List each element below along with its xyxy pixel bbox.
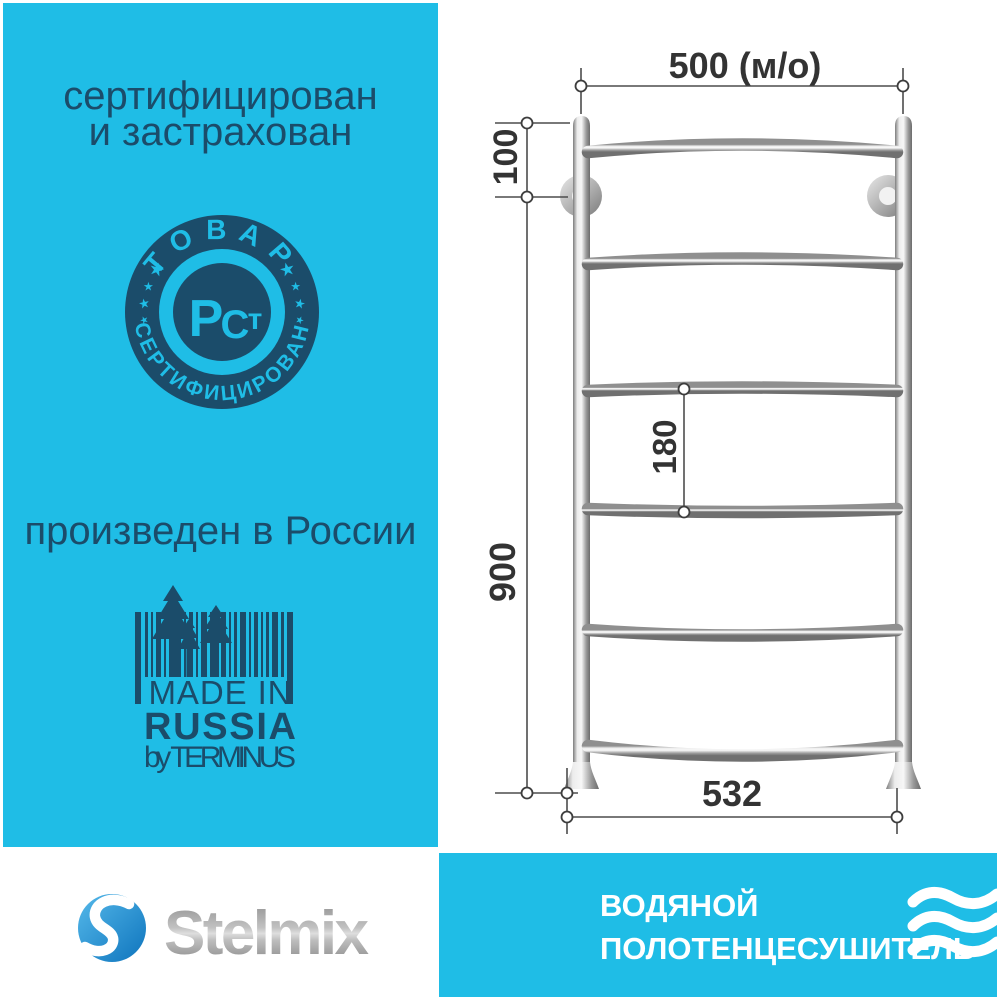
towel-rail-technical-drawing: 500 (м/о) 100 180 900 532 [0, 0, 1000, 1000]
dim-width-bottom: 532 [702, 773, 762, 814]
brand-name: Stelmix [164, 899, 370, 968]
dim-height: 900 [482, 542, 523, 602]
stelmix-logo: Stelmix [72, 888, 382, 968]
dimension-lines [495, 68, 903, 834]
dim-rung-spacing: 180 [646, 419, 683, 474]
dimension-annotations: 500 (м/о) 100 180 900 532 [482, 45, 909, 834]
product-type-text: ВОДЯНОЙ ПОЛОТЕНЦЕСУШИТЕЛЬ [600, 884, 975, 970]
rail-rungs [588, 145, 897, 756]
dimension-labels: 500 (м/о) 100 180 900 532 [482, 45, 821, 814]
product-line2: ПОЛОТЕНЦЕСУШИТЕЛЬ [600, 927, 975, 970]
product-type-panel: ВОДЯНОЙ ПОЛОТЕНЦЕСУШИТЕЛЬ [439, 853, 997, 997]
rail-posts [564, 116, 921, 789]
page: сертифицирован и застрахован Р С т ТОВАР… [0, 0, 1000, 1000]
towel-rail [560, 116, 921, 789]
product-line1: ВОДЯНОЙ [600, 884, 975, 927]
dim-offset-top: 100 [487, 129, 525, 186]
dim-width-top: 500 (м/о) [669, 45, 822, 86]
